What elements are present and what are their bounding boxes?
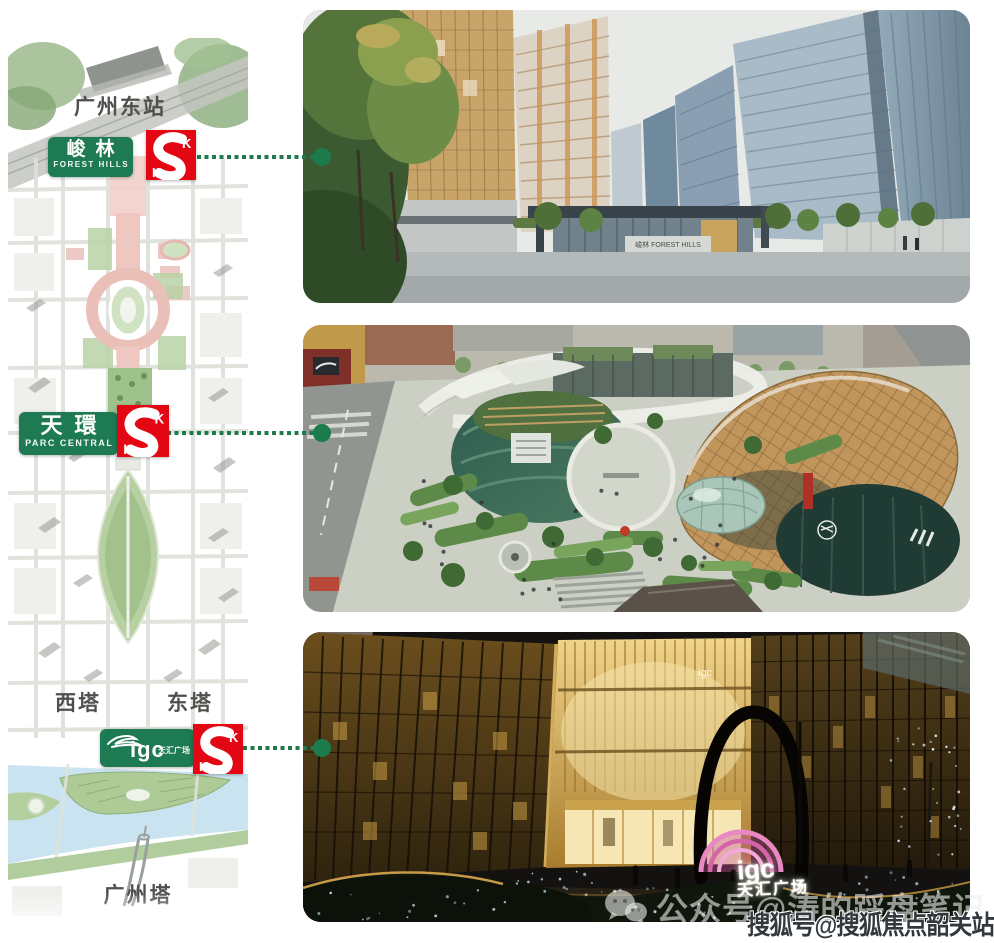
connector-dot (313, 424, 331, 442)
photo-igc: igc (303, 632, 970, 922)
left-gold-tower (303, 632, 558, 882)
badge-parc-central: 天環 PARC CENTRAL (19, 412, 118, 455)
connector-dot (313, 739, 331, 757)
logo-letter-h: H (123, 442, 133, 457)
label-west-tower: 西塔 (55, 692, 101, 715)
logo-letter-h: H (199, 759, 208, 774)
connector-dotted-line (197, 155, 316, 159)
wechat-icon (604, 888, 648, 926)
facade-logo-text: igc (698, 667, 713, 679)
logo-letter-k: K (182, 136, 192, 151)
logo-letter-h: H (152, 165, 161, 180)
connector-dotted-line (243, 746, 316, 750)
badge-forest-hills: 峻林 FOREST HILLS (48, 137, 133, 177)
sohu-watermark: 搜狐号@搜狐焦点韶关站 (747, 905, 994, 942)
badge-forest-hills-subtitle: FOREST HILLS (48, 160, 135, 169)
connector-dotted-line (167, 431, 316, 435)
badge-parc-central-subtitle: PARC CENTRAL (19, 438, 120, 448)
label-gz-east-station: 广州东站 (74, 95, 166, 119)
photo-parc-central (303, 325, 970, 612)
label-east-tower: 东塔 (167, 691, 213, 715)
page: 广州东站 西塔 东塔 广州塔 峻林 FOREST HILLS 天環 PARC C… (0, 0, 994, 943)
shk-developer-logo: K H (193, 724, 243, 774)
gate-sign-text: 峻林 FOREST HILLS (635, 240, 701, 249)
right-gold-building (751, 632, 970, 870)
logo-letter-k: K (154, 412, 164, 427)
badge-igc: igc 天汇广场 (100, 729, 195, 767)
badge-parc-central-title: 天環 (19, 414, 130, 438)
shk-developer-logo: K H (146, 130, 196, 180)
connector-dot (313, 148, 331, 166)
map-central-axis (83, 156, 189, 643)
photo-forest-hills: 峻林 FOREST HILLS (303, 10, 970, 303)
badge-forest-hills-title: 峻林 (48, 139, 143, 160)
sohu-watermark-text: 搜狐号@搜狐焦点韶关站 (747, 910, 994, 940)
logo-letter-k: K (229, 730, 239, 745)
badge-igc-subtitle: 天汇广场 (158, 745, 190, 756)
shk-developer-logo: K H (117, 405, 169, 457)
